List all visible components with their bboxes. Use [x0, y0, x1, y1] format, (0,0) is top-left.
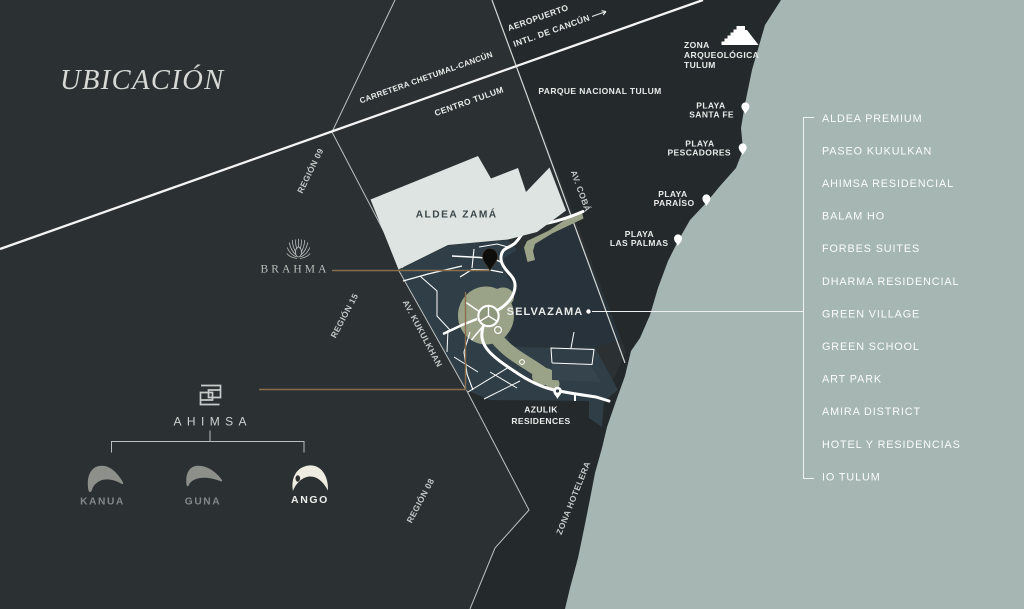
svg-text:SANTA FE: SANTA FE [689, 110, 734, 120]
svg-text:ART PARK: ART PARK [822, 374, 882, 386]
svg-text:HOTEL Y RESIDENCIAS: HOTEL Y RESIDENCIAS [822, 439, 961, 451]
svg-text:ZONA: ZONA [684, 40, 710, 50]
svg-text:PASEO KUKULKAN: PASEO KUKULKAN [822, 145, 932, 157]
svg-text:ALDEA PREMIUM: ALDEA PREMIUM [822, 113, 923, 125]
svg-text:GREEN SCHOOL: GREEN SCHOOL [822, 341, 920, 353]
svg-text:LAS PALMAS: LAS PALMAS [610, 238, 669, 248]
svg-text:PARAÍSO: PARAÍSO [654, 198, 695, 208]
svg-text:ARQUEOLÓGICA: ARQUEOLÓGICA [684, 49, 759, 60]
svg-text:KANUA: KANUA [80, 497, 125, 508]
svg-text:FORBES SUITES: FORBES SUITES [822, 243, 920, 255]
svg-text:ANGO: ANGO [291, 494, 329, 506]
svg-text:TULUM: TULUM [684, 60, 716, 70]
svg-text:IO TULUM: IO TULUM [822, 471, 881, 483]
svg-text:AMIRA DISTRICT: AMIRA DISTRICT [822, 406, 921, 418]
svg-text:GUNA: GUNA [185, 497, 221, 508]
svg-text:UBICACIÓN: UBICACIÓN [60, 63, 225, 96]
svg-text:SELVAZAMA: SELVAZAMA [507, 306, 584, 318]
svg-text:GREEN VILLAGE: GREEN VILLAGE [822, 308, 920, 320]
svg-text:DHARMA RESIDENCIAL: DHARMA RESIDENCIAL [822, 276, 959, 288]
svg-text:BALAM HO: BALAM HO [822, 211, 885, 223]
svg-text:AHIMSA RESIDENCIAL: AHIMSA RESIDENCIAL [822, 178, 954, 190]
svg-text:AHIMSA: AHIMSA [173, 415, 251, 429]
svg-text:ALDEA ZAMÁ: ALDEA ZAMÁ [416, 208, 498, 221]
svg-text:RESIDENCES: RESIDENCES [511, 416, 570, 426]
svg-text:AZULIK: AZULIK [524, 405, 558, 415]
svg-text:BRAHMA: BRAHMA [260, 264, 329, 276]
svg-text:PARQUE NACIONAL TULUM: PARQUE NACIONAL TULUM [538, 86, 661, 96]
svg-text:PESCADORES: PESCADORES [667, 148, 731, 158]
